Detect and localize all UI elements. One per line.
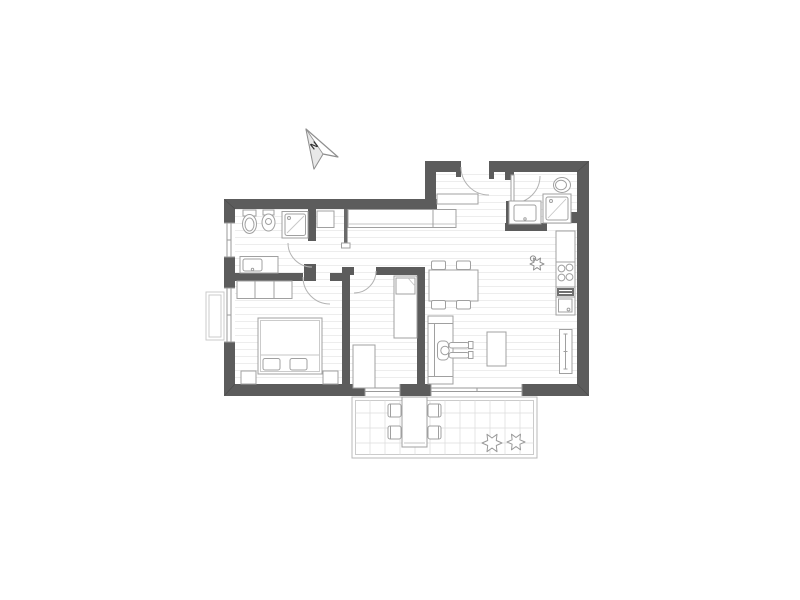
single-bed-pillow [396,278,415,294]
pillow [263,359,280,371]
wall-bathroom2-nub [571,212,577,223]
person-head [441,346,449,354]
person-leg [449,353,469,359]
dining-chair [432,261,446,270]
oven [557,288,574,296]
wall-smallroom-top-a [342,267,354,275]
wall-top-right-b [489,161,589,172]
dining-chair [457,261,471,270]
wall-hall-divider [342,267,350,384]
coffee-table [487,332,506,366]
wall-left-middle [224,257,235,288]
north-arrow: N [306,129,338,169]
terrace-chair [428,426,441,439]
terrace-chair [388,426,401,439]
desk [353,345,375,388]
window-bathroom-left [224,223,235,257]
terrace-chair [428,404,441,417]
wall-bedroom-top [224,273,303,281]
wall-bottom-middle [400,384,431,396]
terrace-table [402,397,427,447]
shoe-cabinet [437,194,478,204]
flower-box-inner [209,295,221,337]
wall-right [577,161,589,396]
hall-wardrobe [348,210,456,228]
dining-chair [432,301,446,310]
window-bedroom-left [206,288,235,342]
terrace-outer-border [352,397,537,458]
hall-door-handle [342,243,351,248]
small-closet [317,211,334,228]
bathroom2-door-leaf [511,175,514,201]
wall-top-right-a [425,161,461,172]
hall-door-leaf [344,209,348,247]
person-foot [469,342,474,349]
pillow [290,359,307,371]
terrace [352,397,537,458]
person-foot [469,352,474,359]
toilet2 [554,178,571,193]
dining-chair [457,301,471,310]
wall-top-left [224,199,437,209]
person-leg [449,343,469,349]
floor-plan-drawing: N [0,0,800,600]
nightstand [241,371,256,384]
entrance-jamb-right [489,172,494,179]
wall-bottom-left [224,384,365,396]
entrance-jamb-left [456,172,461,177]
floor-plan-canvas: N [0,0,800,600]
nightstand [323,371,338,384]
wall-bathroom-right [308,209,316,241]
bidet [262,214,275,231]
wall-smallroom-right [417,267,425,384]
terrace-chair [388,404,401,417]
bedroom-wardrobe [237,281,292,299]
dining-table [429,270,478,301]
glass-sliding-door [431,384,522,396]
